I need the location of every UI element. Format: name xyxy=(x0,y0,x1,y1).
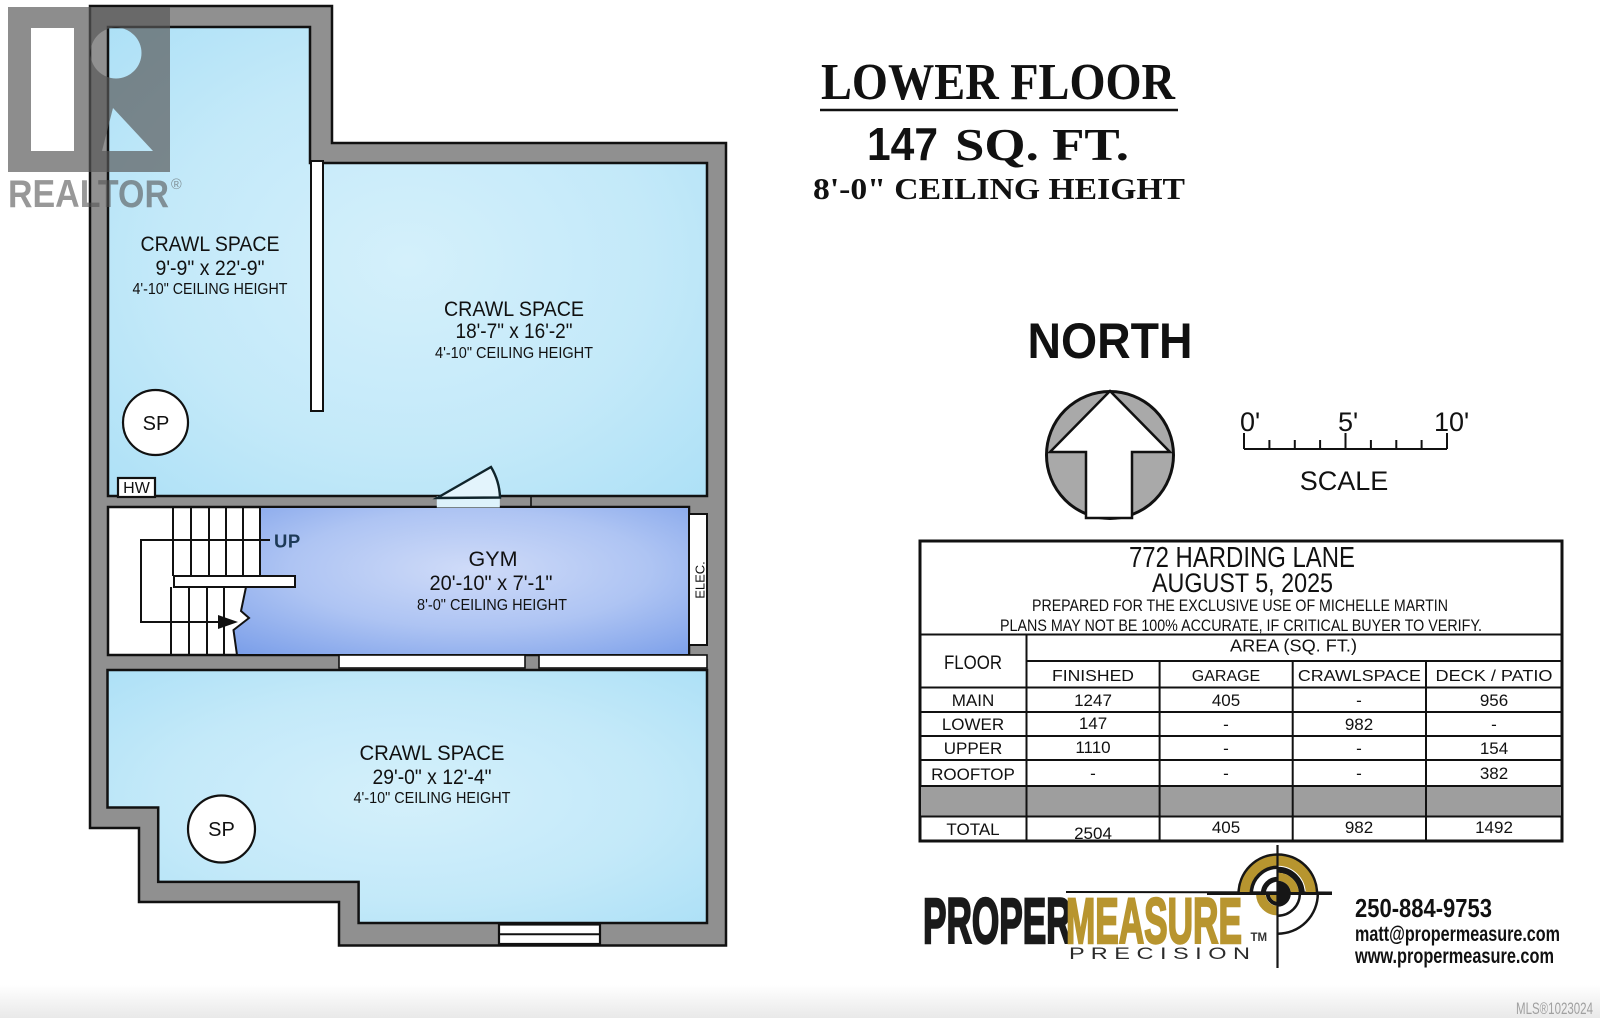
svg-text:250-884-9753: 250-884-9753 xyxy=(1355,893,1492,923)
svg-text:18'-7" x 16'-2": 18'-7" x 16'-2" xyxy=(456,319,573,343)
svg-text:NORTH: NORTH xyxy=(1028,313,1193,369)
svg-text:-: - xyxy=(1223,715,1229,734)
svg-text:SQ. FT.: SQ. FT. xyxy=(955,119,1129,170)
svg-text:GYM: GYM xyxy=(469,547,518,571)
svg-text:147: 147 xyxy=(1079,714,1107,733)
svg-text:TM: TM xyxy=(1251,932,1268,944)
svg-text:405: 405 xyxy=(1212,691,1240,710)
svg-text:MAIN: MAIN xyxy=(952,691,995,710)
svg-text:1110: 1110 xyxy=(1075,738,1110,757)
svg-text:LOWER: LOWER xyxy=(942,715,1004,734)
svg-text:405: 405 xyxy=(1212,818,1240,837)
svg-text:5': 5' xyxy=(1338,407,1358,437)
svg-text:4'-10" CEILING HEIGHT: 4'-10" CEILING HEIGHT xyxy=(435,345,593,362)
svg-text:PROPER: PROPER xyxy=(923,885,1072,957)
svg-text:TOTAL: TOTAL xyxy=(946,820,999,839)
svg-text:4'-10" CEILING HEIGHT: 4'-10" CEILING HEIGHT xyxy=(133,281,288,298)
svg-text:PREPARED FOR THE EXCLUSIVE USE: PREPARED FOR THE EXCLUSIVE USE OF MICHEL… xyxy=(1032,596,1448,615)
svg-text:982: 982 xyxy=(1345,715,1373,734)
svg-text:PLANS MAY NOT BE 100% ACCURATE: PLANS MAY NOT BE 100% ACCURATE, IF CRITI… xyxy=(1000,616,1482,635)
svg-text:0': 0' xyxy=(1240,407,1260,437)
svg-text:SP: SP xyxy=(143,413,170,435)
svg-text:CRAWL SPACE: CRAWL SPACE xyxy=(141,232,280,256)
svg-text:DECK / PATIO: DECK / PATIO xyxy=(1436,668,1553,685)
svg-text:8'-0" CEILING HEIGHT: 8'-0" CEILING HEIGHT xyxy=(417,597,567,614)
svg-text:®: ® xyxy=(171,177,182,193)
svg-text:147: 147 xyxy=(867,118,938,170)
svg-text:956: 956 xyxy=(1480,691,1508,710)
svg-text:9'-9" x 22'-9": 9'-9" x 22'-9" xyxy=(156,256,265,280)
svg-text:LOWER FLOOR: LOWER FLOOR xyxy=(821,54,1176,111)
svg-text:4'-10" CEILING HEIGHT: 4'-10" CEILING HEIGHT xyxy=(354,790,511,807)
svg-text:-: - xyxy=(1491,715,1497,734)
svg-text:382: 382 xyxy=(1480,764,1508,783)
svg-text:MLS®1023024: MLS®1023024 xyxy=(1516,1000,1593,1018)
svg-text:P R E C I S I O N: P R E C I S I O N xyxy=(1069,944,1250,963)
svg-text:CRAWL SPACE: CRAWL SPACE xyxy=(444,297,584,321)
svg-text:www.propermeasure.com: www.propermeasure.com xyxy=(1354,945,1554,968)
svg-text:-: - xyxy=(1356,691,1362,710)
svg-text:10': 10' xyxy=(1434,407,1469,437)
svg-text:154: 154 xyxy=(1480,739,1508,758)
svg-text:CRAWLSPACE: CRAWLSPACE xyxy=(1298,668,1421,685)
svg-text:matt@propermeasure.com: matt@propermeasure.com xyxy=(1355,923,1560,946)
svg-text:20'-10" x 7'-1": 20'-10" x 7'-1" xyxy=(430,571,553,595)
svg-text:-: - xyxy=(1090,764,1096,783)
svg-text:FINISHED: FINISHED xyxy=(1052,668,1134,685)
svg-text:-: - xyxy=(1356,764,1362,783)
svg-text:ELEC.: ELEC. xyxy=(692,561,707,599)
svg-text:HW: HW xyxy=(123,480,151,497)
svg-text:ROOFTOP: ROOFTOP xyxy=(931,765,1015,784)
svg-text:8'-0" CEILING HEIGHT: 8'-0" CEILING HEIGHT xyxy=(813,171,1185,206)
svg-text:SCALE: SCALE xyxy=(1300,466,1389,496)
svg-text:AREA (SQ. FT.): AREA (SQ. FT.) xyxy=(1230,636,1357,656)
svg-text:REALTOR: REALTOR xyxy=(8,173,169,216)
svg-text:CRAWL SPACE: CRAWL SPACE xyxy=(360,741,505,765)
svg-text:1492: 1492 xyxy=(1475,818,1513,837)
svg-text:FLOOR: FLOOR xyxy=(944,652,1002,674)
svg-text:GARAGE: GARAGE xyxy=(1192,668,1260,685)
svg-text:UP: UP xyxy=(274,531,301,552)
svg-text:29'-0" x 12'-4": 29'-0" x 12'-4" xyxy=(373,765,492,789)
svg-text:SP: SP xyxy=(208,819,235,841)
svg-text:UPPER: UPPER xyxy=(944,739,1003,758)
svg-text:-: - xyxy=(1356,739,1362,758)
svg-text:1247: 1247 xyxy=(1074,691,1112,710)
svg-text:AUGUST 5, 2025: AUGUST 5, 2025 xyxy=(1152,568,1333,598)
svg-text:2504: 2504 xyxy=(1074,824,1112,843)
svg-text:982: 982 xyxy=(1345,818,1373,837)
svg-text:-: - xyxy=(1223,739,1229,758)
svg-text:-: - xyxy=(1223,764,1229,783)
